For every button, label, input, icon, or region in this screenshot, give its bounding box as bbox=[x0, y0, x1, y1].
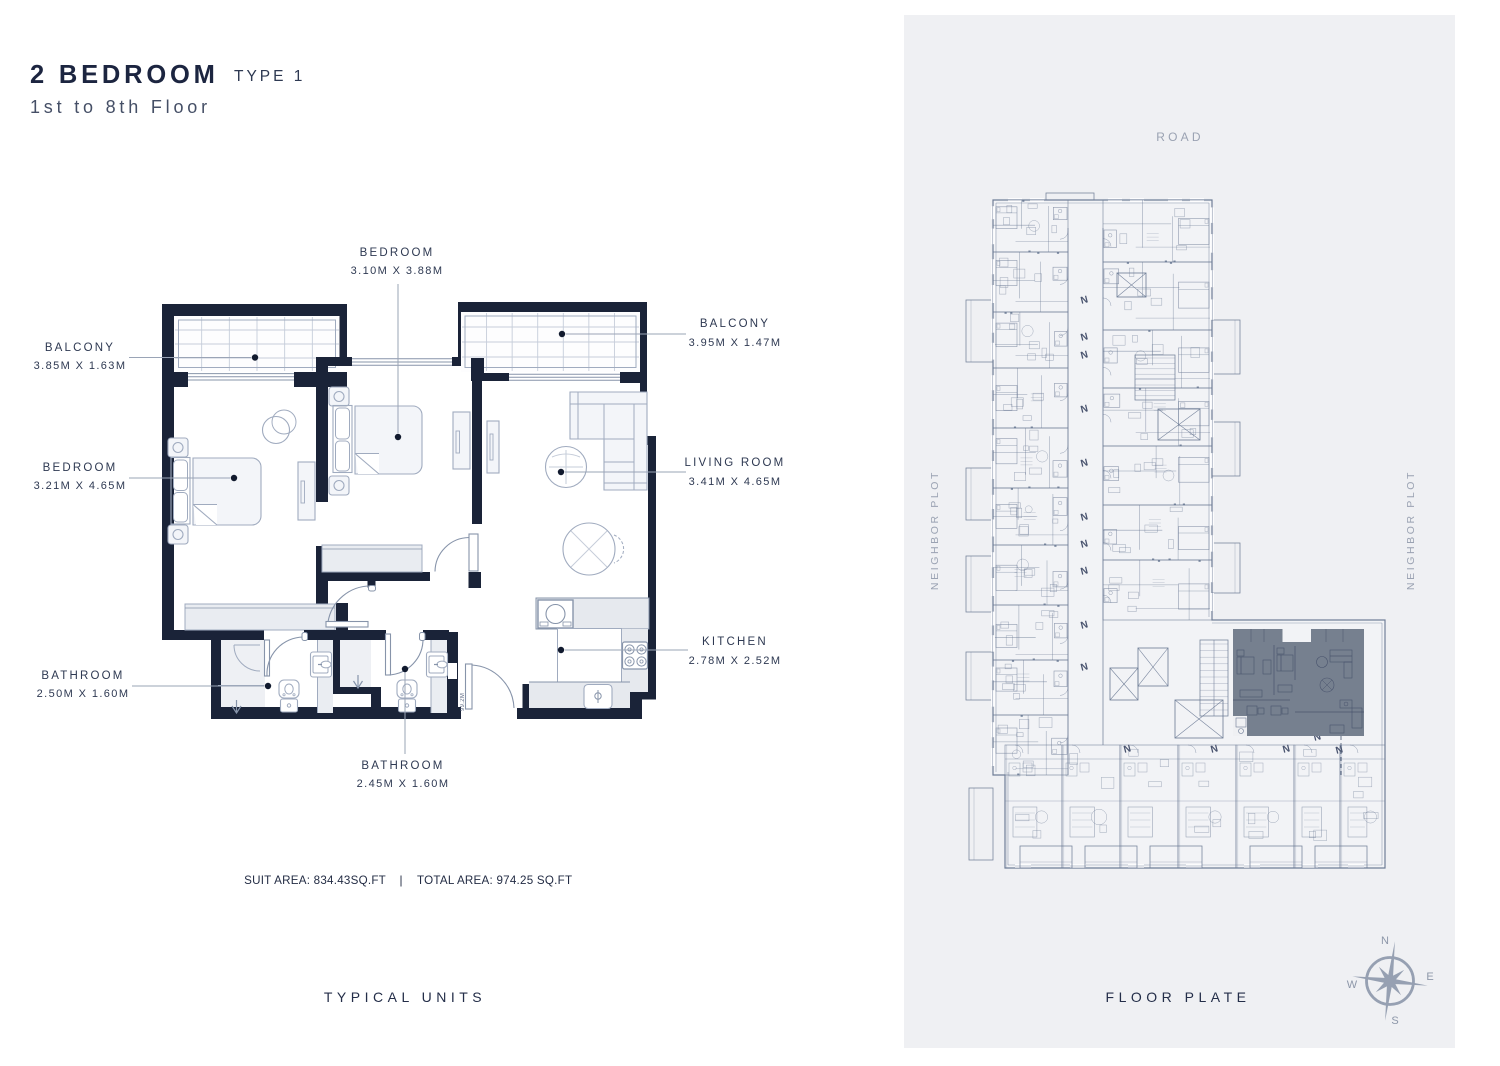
svg-text:3.95M X 1.47M: 3.95M X 1.47M bbox=[689, 337, 782, 349]
svg-text:TYPICAL UNITS: TYPICAL UNITS bbox=[324, 989, 486, 1005]
svg-text:3.21M X 4.65M: 3.21M X 4.65M bbox=[34, 480, 127, 492]
svg-text:BEDROOM: BEDROOM bbox=[360, 247, 435, 259]
svg-text:BALCONY: BALCONY bbox=[700, 318, 770, 330]
svg-text:2.78M X 2.52M: 2.78M X 2.52M bbox=[689, 655, 782, 667]
svg-text:BEDROOM: BEDROOM bbox=[43, 462, 118, 474]
svg-text:|: | bbox=[399, 874, 402, 887]
svg-text:LIVING ROOM: LIVING ROOM bbox=[685, 457, 786, 469]
svg-text:TYPE 1: TYPE 1 bbox=[234, 68, 305, 85]
svg-text:NEIGHBOR PLOT: NEIGHBOR PLOT bbox=[1405, 470, 1417, 590]
svg-text:2.45M X 1.60M: 2.45M X 1.60M bbox=[357, 778, 450, 790]
svg-text:KITCHEN: KITCHEN bbox=[702, 636, 768, 648]
svg-text:FLOOR PLATE: FLOOR PLATE bbox=[1106, 989, 1251, 1005]
svg-text:NEIGHBOR PLOT: NEIGHBOR PLOT bbox=[929, 470, 941, 590]
svg-text:N: N bbox=[1381, 935, 1389, 947]
svg-text:W: W bbox=[1347, 979, 1358, 991]
svg-text:ROAD: ROAD bbox=[1156, 130, 1203, 144]
svg-text:E: E bbox=[1426, 971, 1433, 983]
svg-text:2.50M X 1.60M: 2.50M X 1.60M bbox=[37, 688, 130, 700]
svg-text:3.10M X 3.88M: 3.10M X 3.88M bbox=[351, 265, 444, 277]
svg-text:TOTAL AREA: 974.25 SQ.FT: TOTAL AREA: 974.25 SQ.FT bbox=[417, 874, 572, 887]
svg-text:BATHROOM: BATHROOM bbox=[41, 670, 124, 682]
svg-text:1st to 8th Floor: 1st to 8th Floor bbox=[30, 97, 211, 117]
svg-text:2 BEDROOM: 2 BEDROOM bbox=[30, 61, 219, 89]
svg-text:SUIT AREA: 834.43SQ.FT: SUIT AREA: 834.43SQ.FT bbox=[244, 874, 386, 887]
svg-text:BATHROOM: BATHROOM bbox=[361, 760, 444, 772]
svg-text:S: S bbox=[1391, 1015, 1398, 1027]
svg-text:3.85M X 1.63M: 3.85M X 1.63M bbox=[34, 360, 127, 372]
svg-text:3.41M X 4.65M: 3.41M X 4.65M bbox=[689, 476, 782, 488]
svg-text:BALCONY: BALCONY bbox=[45, 342, 115, 354]
